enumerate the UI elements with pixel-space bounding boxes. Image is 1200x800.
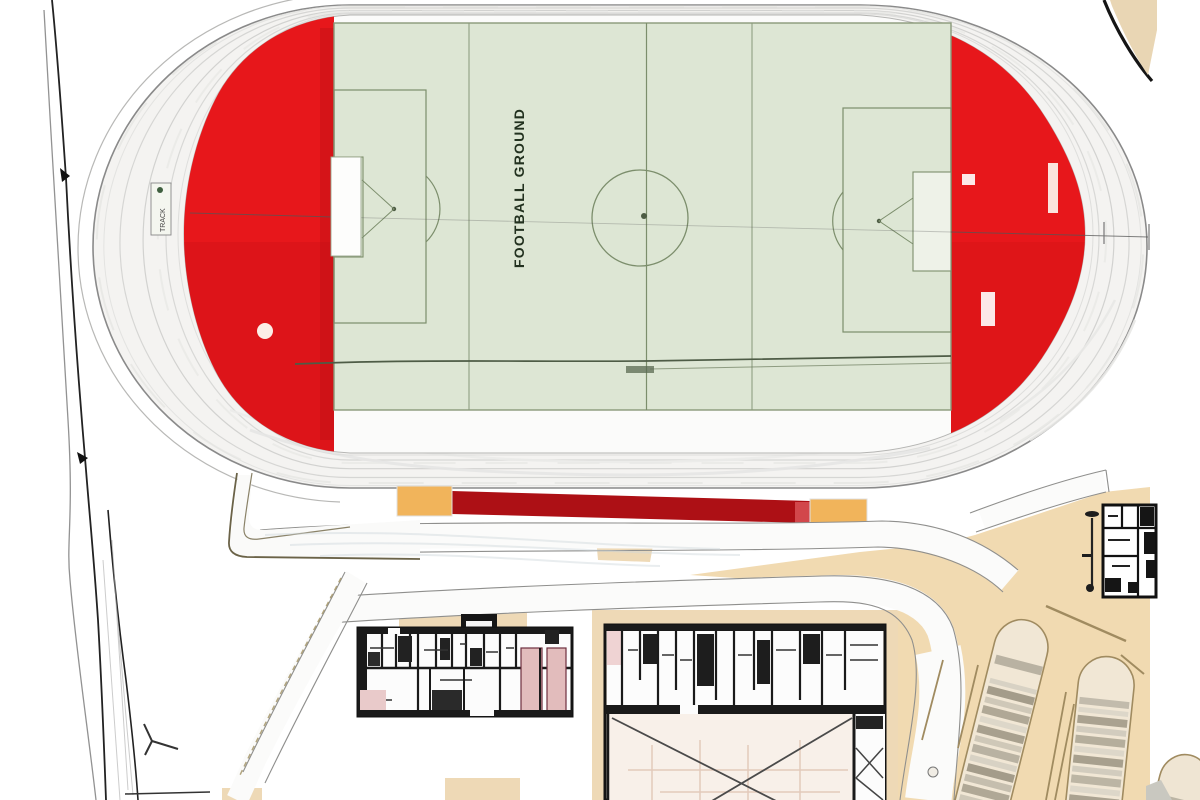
svg-text:FOOTBALL GROUND: FOOTBALL GROUND xyxy=(511,108,527,268)
svg-text:TRACK: TRACK xyxy=(160,208,167,232)
